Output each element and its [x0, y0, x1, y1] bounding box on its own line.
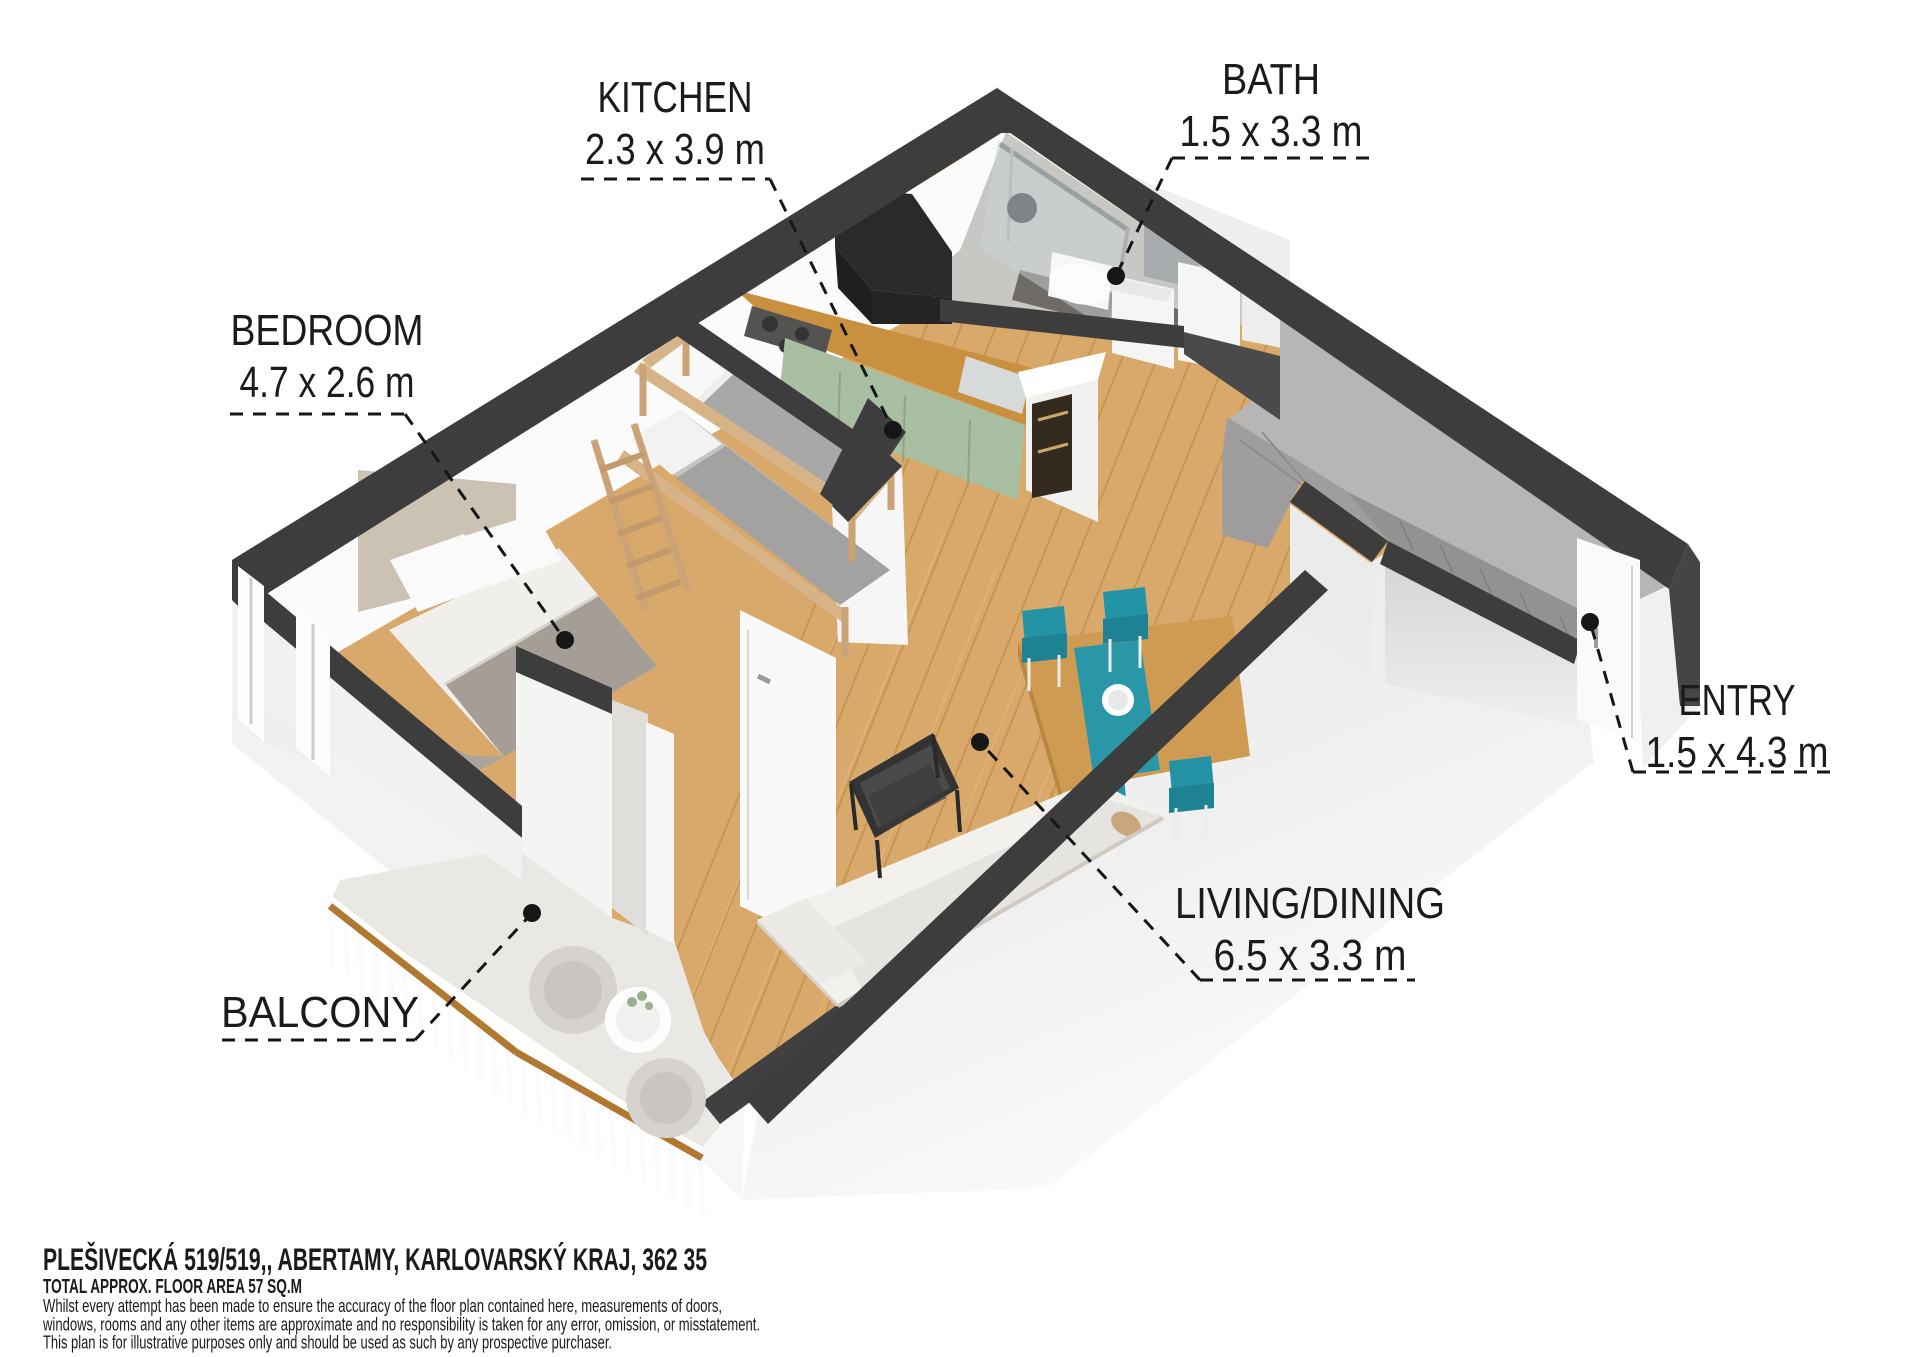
svg-text:2.3 x 3.9 m: 2.3 x 3.9 m	[585, 125, 765, 174]
svg-text:ENTRY: ENTRY	[1679, 676, 1796, 725]
svg-text:4.7 x 2.6 m: 4.7 x 2.6 m	[240, 358, 415, 407]
svg-text:1.5 x 4.3 m: 1.5 x 4.3 m	[1646, 728, 1829, 777]
svg-text:BATH: BATH	[1222, 55, 1320, 104]
svg-text:BALCONY: BALCONY	[221, 988, 419, 1037]
svg-text:6.5 x 3.3 m: 6.5 x 3.3 m	[1214, 931, 1407, 980]
svg-text:PLEŠIVECKÁ 519/519,, ABERTAMY,: PLEŠIVECKÁ 519/519,, ABERTAMY, KARLOVARS…	[43, 1241, 707, 1277]
svg-text:LIVING/DINING: LIVING/DINING	[1175, 879, 1445, 928]
svg-text:BEDROOM: BEDROOM	[231, 306, 424, 355]
svg-text:1.5 x 3.3 m: 1.5 x 3.3 m	[1180, 107, 1363, 156]
svg-text:KITCHEN: KITCHEN	[598, 73, 753, 122]
svg-text:This plan is for illustrative: This plan is for illustrative purposes o…	[43, 1332, 612, 1353]
